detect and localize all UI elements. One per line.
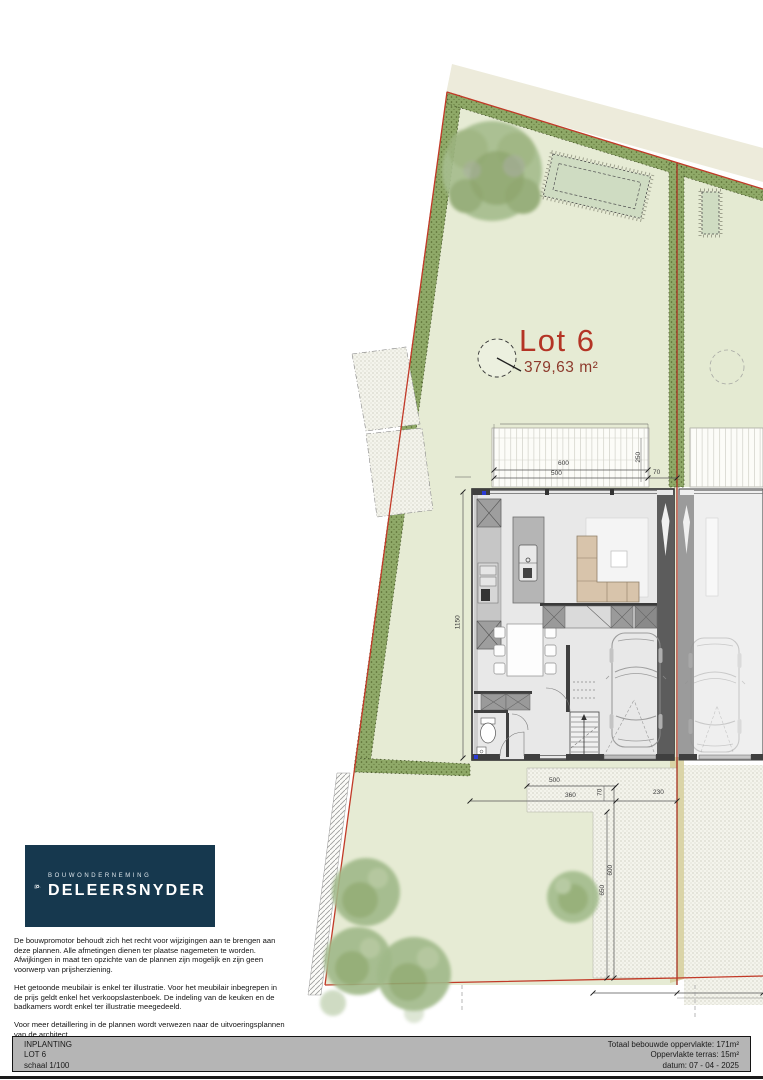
date-label: datum: 07 - 04 - 2025 [608, 1061, 739, 1071]
title-block: INPLANTING LOT 6 schaal 1/100 Totaal beb… [12, 1036, 751, 1072]
dim-front-width: 500 [549, 778, 560, 785]
logo-company-name: DELEERSNYDER [48, 882, 206, 900]
coffee-table [611, 551, 627, 567]
dim-house-depth: 1150 [456, 615, 463, 629]
terrace-area-label: Oppervlakte terras: 15m² [608, 1050, 739, 1060]
utility-marker [482, 491, 486, 495]
dim-terrace-width: 600 [558, 461, 569, 468]
lot-area-label: 379,63 m² [524, 359, 598, 377]
dim-terrace-width-inner: 500 [551, 471, 562, 478]
kitchen-appliances [478, 563, 498, 603]
tree [332, 858, 400, 926]
garage-door [699, 755, 751, 759]
utility-marker [474, 755, 478, 759]
dim-front-path: 360 [565, 793, 576, 800]
disclaimer-text: De bouwpromotor behoudt zich het recht v… [14, 936, 286, 1047]
garage-cabinets [543, 606, 657, 628]
disclaimer-paragraph-2: Het getoonde meubilair is enkel ter illu… [14, 983, 286, 1012]
company-logo: BOUWONDERNEMING DELEERSNYDER [25, 845, 215, 927]
lot-number-label: LOT 6 [24, 1050, 72, 1060]
hall-storage [481, 694, 530, 710]
tree [320, 990, 346, 1016]
dim-garden-depth-b: 600 [608, 865, 615, 876]
lot-label: Lot 6 [519, 323, 595, 359]
tree [442, 121, 542, 221]
drawing-type-label: INPLANTING [24, 1040, 72, 1050]
tree [547, 871, 599, 923]
house-floor-plan [472, 489, 763, 760]
kitchen-island [513, 517, 544, 603]
dim-garden-depth-a: 650 [600, 885, 607, 896]
garage-door [604, 755, 656, 759]
architectural-site-plan-sheet: Lot 6 379,63 m² 600 500 250 70 1150 500 … [0, 0, 763, 1080]
dim-side-strip: 70 [653, 470, 660, 477]
dining-table [494, 624, 556, 676]
dim-terrace-depth: 250 [636, 452, 643, 463]
scale-label: schaal 1/100 [24, 1061, 72, 1071]
builder-logo-icon [34, 859, 41, 913]
logo-tagline: BOUWONDERNEMING [48, 873, 206, 879]
dim-front-strip: 70 [597, 789, 604, 796]
dim-front-side: 230 [653, 790, 664, 797]
built-area-label: Totaal bebouwde oppervlakte: 171m² [608, 1040, 739, 1050]
disclaimer-paragraph-1: De bouwpromotor behoudt zich het recht v… [14, 936, 286, 975]
sheet-bottom-border [0, 1076, 763, 1079]
tree [377, 937, 451, 1023]
